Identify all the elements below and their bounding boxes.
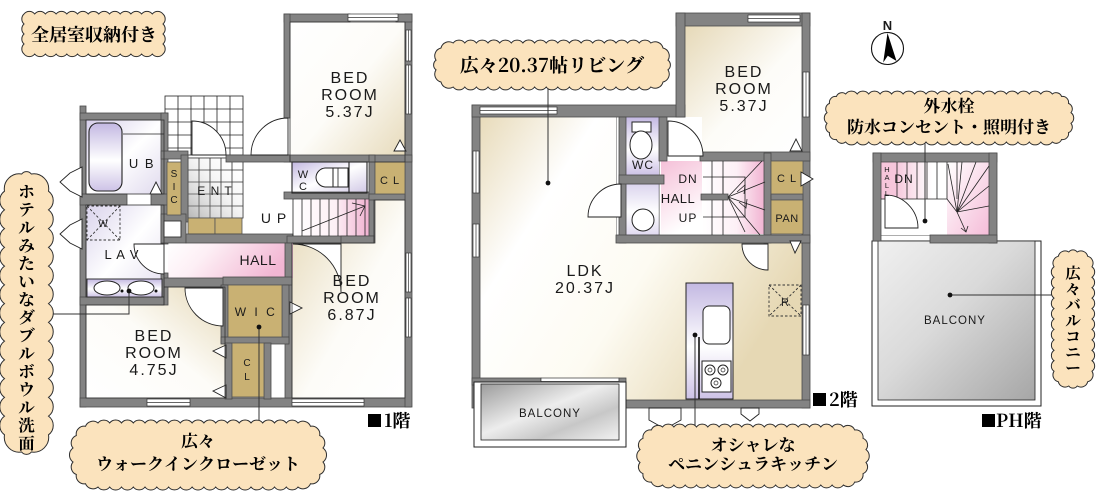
svg-text:4.75J: 4.75J xyxy=(129,362,178,379)
svg-text:BALCONY: BALCONY xyxy=(924,315,986,327)
svg-text:5.37J: 5.37J xyxy=(719,98,768,115)
svg-text:U B: U B xyxy=(129,156,155,171)
svg-text:ROOM: ROOM xyxy=(323,290,381,307)
svg-text:I: I xyxy=(173,182,176,193)
svg-text:WC: WC xyxy=(632,158,654,172)
svg-text:S: S xyxy=(171,169,178,180)
svg-text:ROOM: ROOM xyxy=(715,81,773,98)
svg-text:UP: UP xyxy=(679,211,698,225)
svg-text:HALL: HALL xyxy=(239,252,276,268)
svg-text:ROOM: ROOM xyxy=(321,87,379,104)
svg-text:BED: BED xyxy=(135,328,174,345)
svg-text:HALL: HALL xyxy=(661,191,696,206)
svg-text:5.37J: 5.37J xyxy=(325,104,374,121)
svg-text:W I C: W I C xyxy=(235,305,278,319)
svg-text:C: C xyxy=(170,195,177,206)
svg-text:E N T: E N T xyxy=(197,184,232,198)
svg-text:DN: DN xyxy=(894,172,913,186)
svg-text:BED: BED xyxy=(333,273,372,290)
svg-text:L: L xyxy=(244,372,250,383)
svg-text:N: N xyxy=(883,18,892,33)
svg-text:W: W xyxy=(98,219,108,230)
svg-text:C L: C L xyxy=(380,175,400,187)
svg-text:U P: U P xyxy=(261,210,287,226)
svg-text:W: W xyxy=(298,169,309,181)
svg-text:BED: BED xyxy=(725,64,764,81)
svg-text:6.87J: 6.87J xyxy=(327,307,376,324)
svg-text:L A V: L A V xyxy=(105,247,140,262)
svg-text:PAN: PAN xyxy=(775,213,798,225)
svg-text:R: R xyxy=(781,297,789,309)
svg-text:20.37J: 20.37J xyxy=(555,280,615,297)
svg-text:LDK: LDK xyxy=(566,263,603,280)
svg-text:DN: DN xyxy=(678,172,697,186)
svg-text:C: C xyxy=(243,358,250,369)
svg-text:BALCONY: BALCONY xyxy=(519,408,581,420)
svg-text:ROOM: ROOM xyxy=(125,345,183,362)
svg-text:L: L xyxy=(885,189,889,198)
svg-text:BED: BED xyxy=(331,70,370,87)
svg-text:C L: C L xyxy=(777,173,797,185)
svg-text:C: C xyxy=(299,181,307,193)
